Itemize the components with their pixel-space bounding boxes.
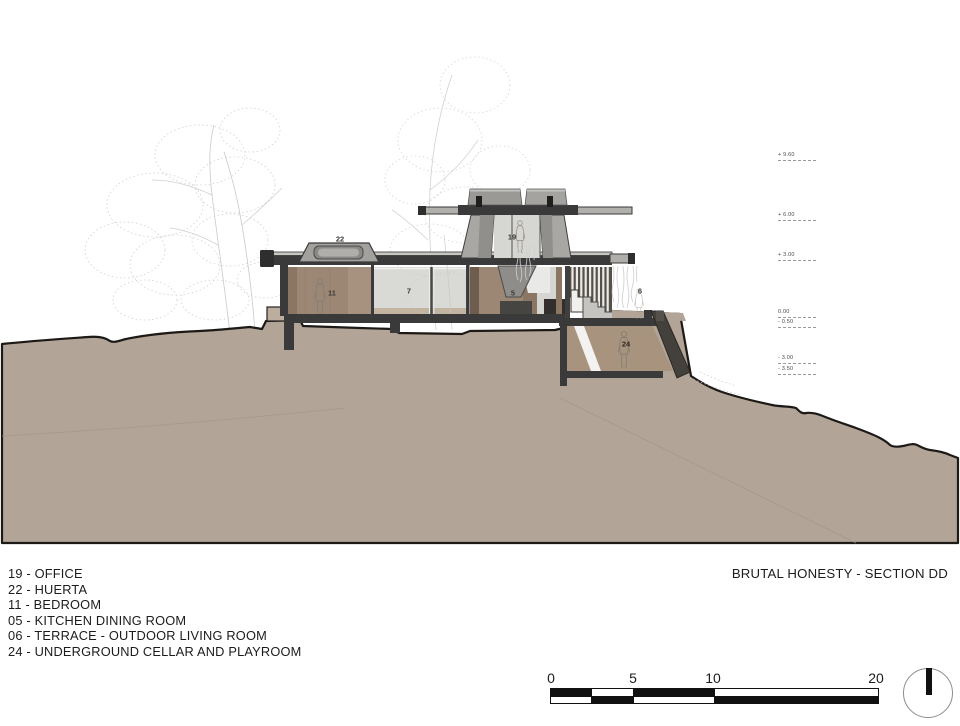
retaining-wall-cap: [656, 311, 664, 321]
elevation-dash: [778, 327, 816, 328]
elevation-dash: [778, 260, 816, 261]
elevation-dash: [778, 363, 816, 364]
architectural-section-sheet: 22 11 7 19 5 6 24 + 9.60 + 6.00 + 3.00 0…: [0, 0, 960, 726]
label-cellar: 24: [622, 340, 630, 349]
legend-item: 05 - KITCHEN DINING ROOM: [8, 613, 302, 629]
tower-post-left: [476, 196, 482, 207]
glass-patio: [373, 267, 469, 318]
left-wall-post: [280, 264, 288, 316]
scale-segment: [633, 697, 714, 703]
kitchen-room: [470, 266, 567, 318]
legend-item: 06 - TERRACE - OUTDOOR LIVING ROOM: [8, 628, 302, 644]
huerta-planter: [299, 243, 379, 262]
legend-item: 24 - UNDERGROUND CELLAR AND PLAYROOM: [8, 644, 302, 660]
floor-slab: [286, 314, 567, 323]
scale-number: 10: [705, 670, 721, 686]
legend-item: 11 - BEDROOM: [8, 597, 302, 613]
scale-number: 5: [629, 670, 637, 686]
scale-segment: [591, 697, 633, 703]
cellar-ceiling-slab: [559, 318, 657, 326]
left-foundation: [284, 314, 294, 350]
north-indicator: [903, 668, 953, 718]
elevation-dash: [778, 160, 816, 161]
scale-segment: [591, 689, 633, 696]
terrain-ground-mass: [2, 311, 958, 543]
pergola-end-cap: [628, 253, 635, 264]
scale-bar-row: [551, 696, 878, 703]
tower-post-right: [547, 196, 553, 207]
scale-segment: [714, 697, 878, 703]
elevation-value: + 9.60: [778, 152, 858, 158]
scale-bar: [550, 688, 879, 704]
roof-left-cap: [260, 250, 274, 267]
room-legend: 19 - OFFICE 22 - HUERTA 11 - BEDROOM 05 …: [8, 566, 302, 659]
stair-railing: [565, 266, 613, 322]
tower-glass: [494, 215, 540, 258]
label-terrace: 6: [638, 287, 642, 296]
elevation-marker: + 6.00: [778, 212, 858, 221]
elevation-value: + 3.00: [778, 252, 858, 258]
scale-number: 0: [547, 670, 555, 686]
scale-segment: [633, 689, 714, 696]
elevation-marker: - 3.50: [778, 366, 858, 375]
label-kitchen: 5: [511, 289, 515, 298]
elevation-value: - 3.00: [778, 355, 858, 361]
elevation-value: + 6.00: [778, 212, 858, 218]
cellar-floor-slab: [560, 371, 663, 378]
label-patio: 7: [407, 287, 411, 296]
label-huerta: 22: [336, 235, 344, 244]
railing-post: [565, 266, 570, 318]
drawing-title: BRUTAL HONESTY - SECTION DD: [732, 566, 948, 581]
elevation-marker: + 9.60: [778, 152, 858, 161]
scale-segment: [714, 689, 878, 696]
scale-segment: [551, 697, 591, 703]
planter-bed-inner: [318, 249, 359, 257]
foundation-stub: [390, 322, 400, 333]
scale-segment: [551, 689, 591, 696]
scale-bar-row: [551, 689, 878, 696]
elevation-dash: [778, 220, 816, 221]
elevation-dash: [778, 374, 816, 375]
elevation-value: 0.00: [778, 309, 858, 315]
terrain: [2, 307, 958, 543]
elevation-marker: 0.00: [778, 309, 858, 318]
label-bedroom: 11: [328, 289, 336, 298]
tree-sketch-left: [85, 108, 293, 335]
elevation-value: - 3.50: [778, 366, 858, 372]
elevation-marker: - 0.50: [778, 319, 858, 328]
north-needle: [926, 668, 932, 695]
legend-item: 22 - HUERTA: [8, 582, 302, 598]
elevation-marker: + 3.00: [778, 252, 858, 261]
scale-number: 20: [868, 670, 884, 686]
tower-beam-left-cap: [418, 206, 426, 215]
legend-item: 19 - OFFICE: [8, 566, 302, 582]
elevation-marker: - 3.00: [778, 355, 858, 364]
office-tower: [418, 189, 632, 258]
elevation-dash: [778, 317, 816, 318]
tower-pillar-right-shade: [540, 215, 553, 258]
label-office: 19: [508, 233, 516, 242]
elevation-value: - 0.50: [778, 319, 858, 325]
